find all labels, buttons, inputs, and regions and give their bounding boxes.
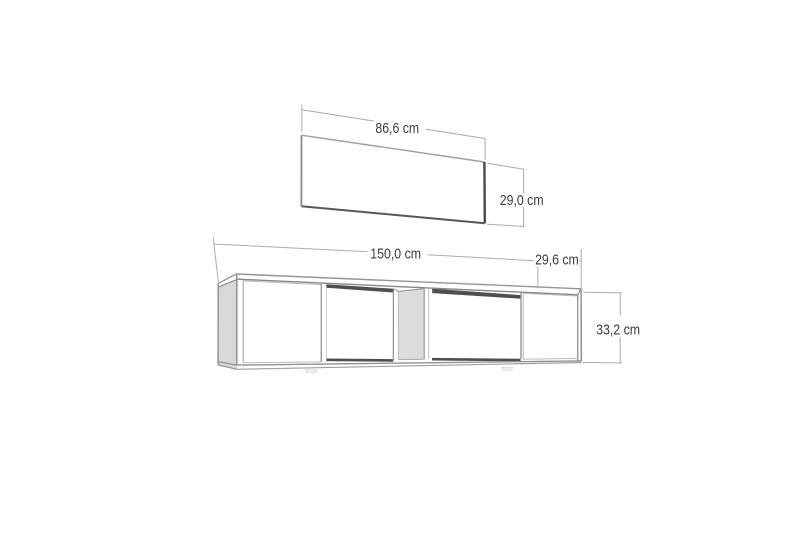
svg-text:33,2 cm: 33,2 cm xyxy=(596,321,640,338)
svg-text:29,6 cm: 29,6 cm xyxy=(535,251,579,268)
svg-text:29,0 cm: 29,0 cm xyxy=(500,192,544,209)
svg-text:150,0 cm: 150,0 cm xyxy=(370,246,421,263)
svg-text:86,6 cm: 86,6 cm xyxy=(375,120,419,137)
